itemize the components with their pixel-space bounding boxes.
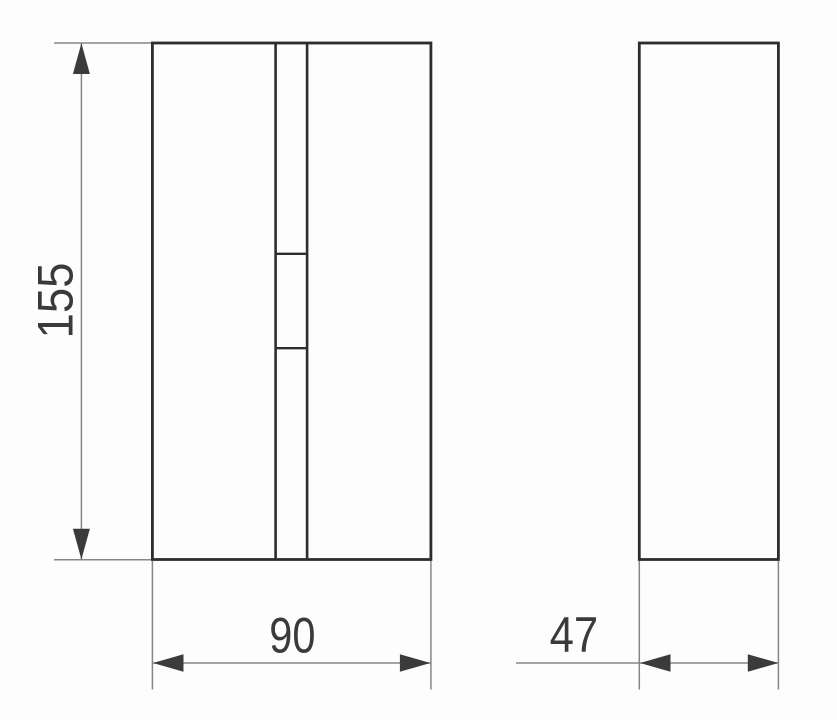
svg-text:90: 90 xyxy=(269,608,315,664)
svg-text:47: 47 xyxy=(550,607,599,663)
svg-text:155: 155 xyxy=(28,263,84,339)
